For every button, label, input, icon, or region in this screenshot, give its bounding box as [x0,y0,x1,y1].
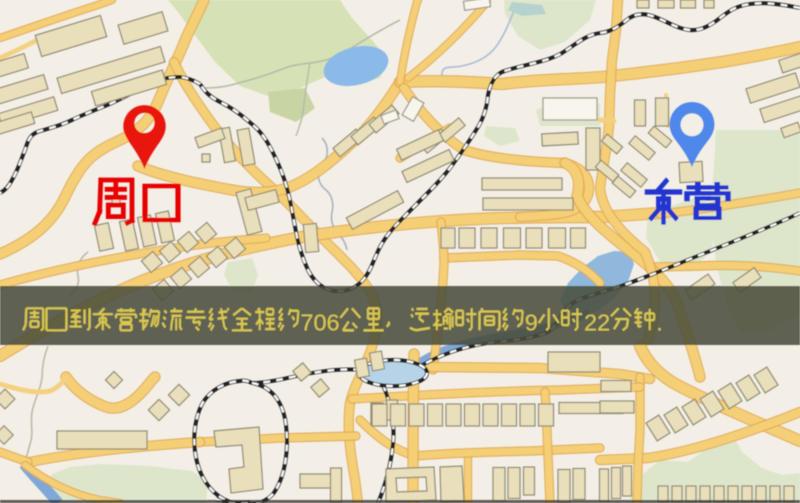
svg-text:.: . [656,309,663,335]
svg-text:22: 22 [584,309,610,335]
svg-text:706: 706 [300,309,339,335]
svg-text:9: 9 [525,309,538,335]
